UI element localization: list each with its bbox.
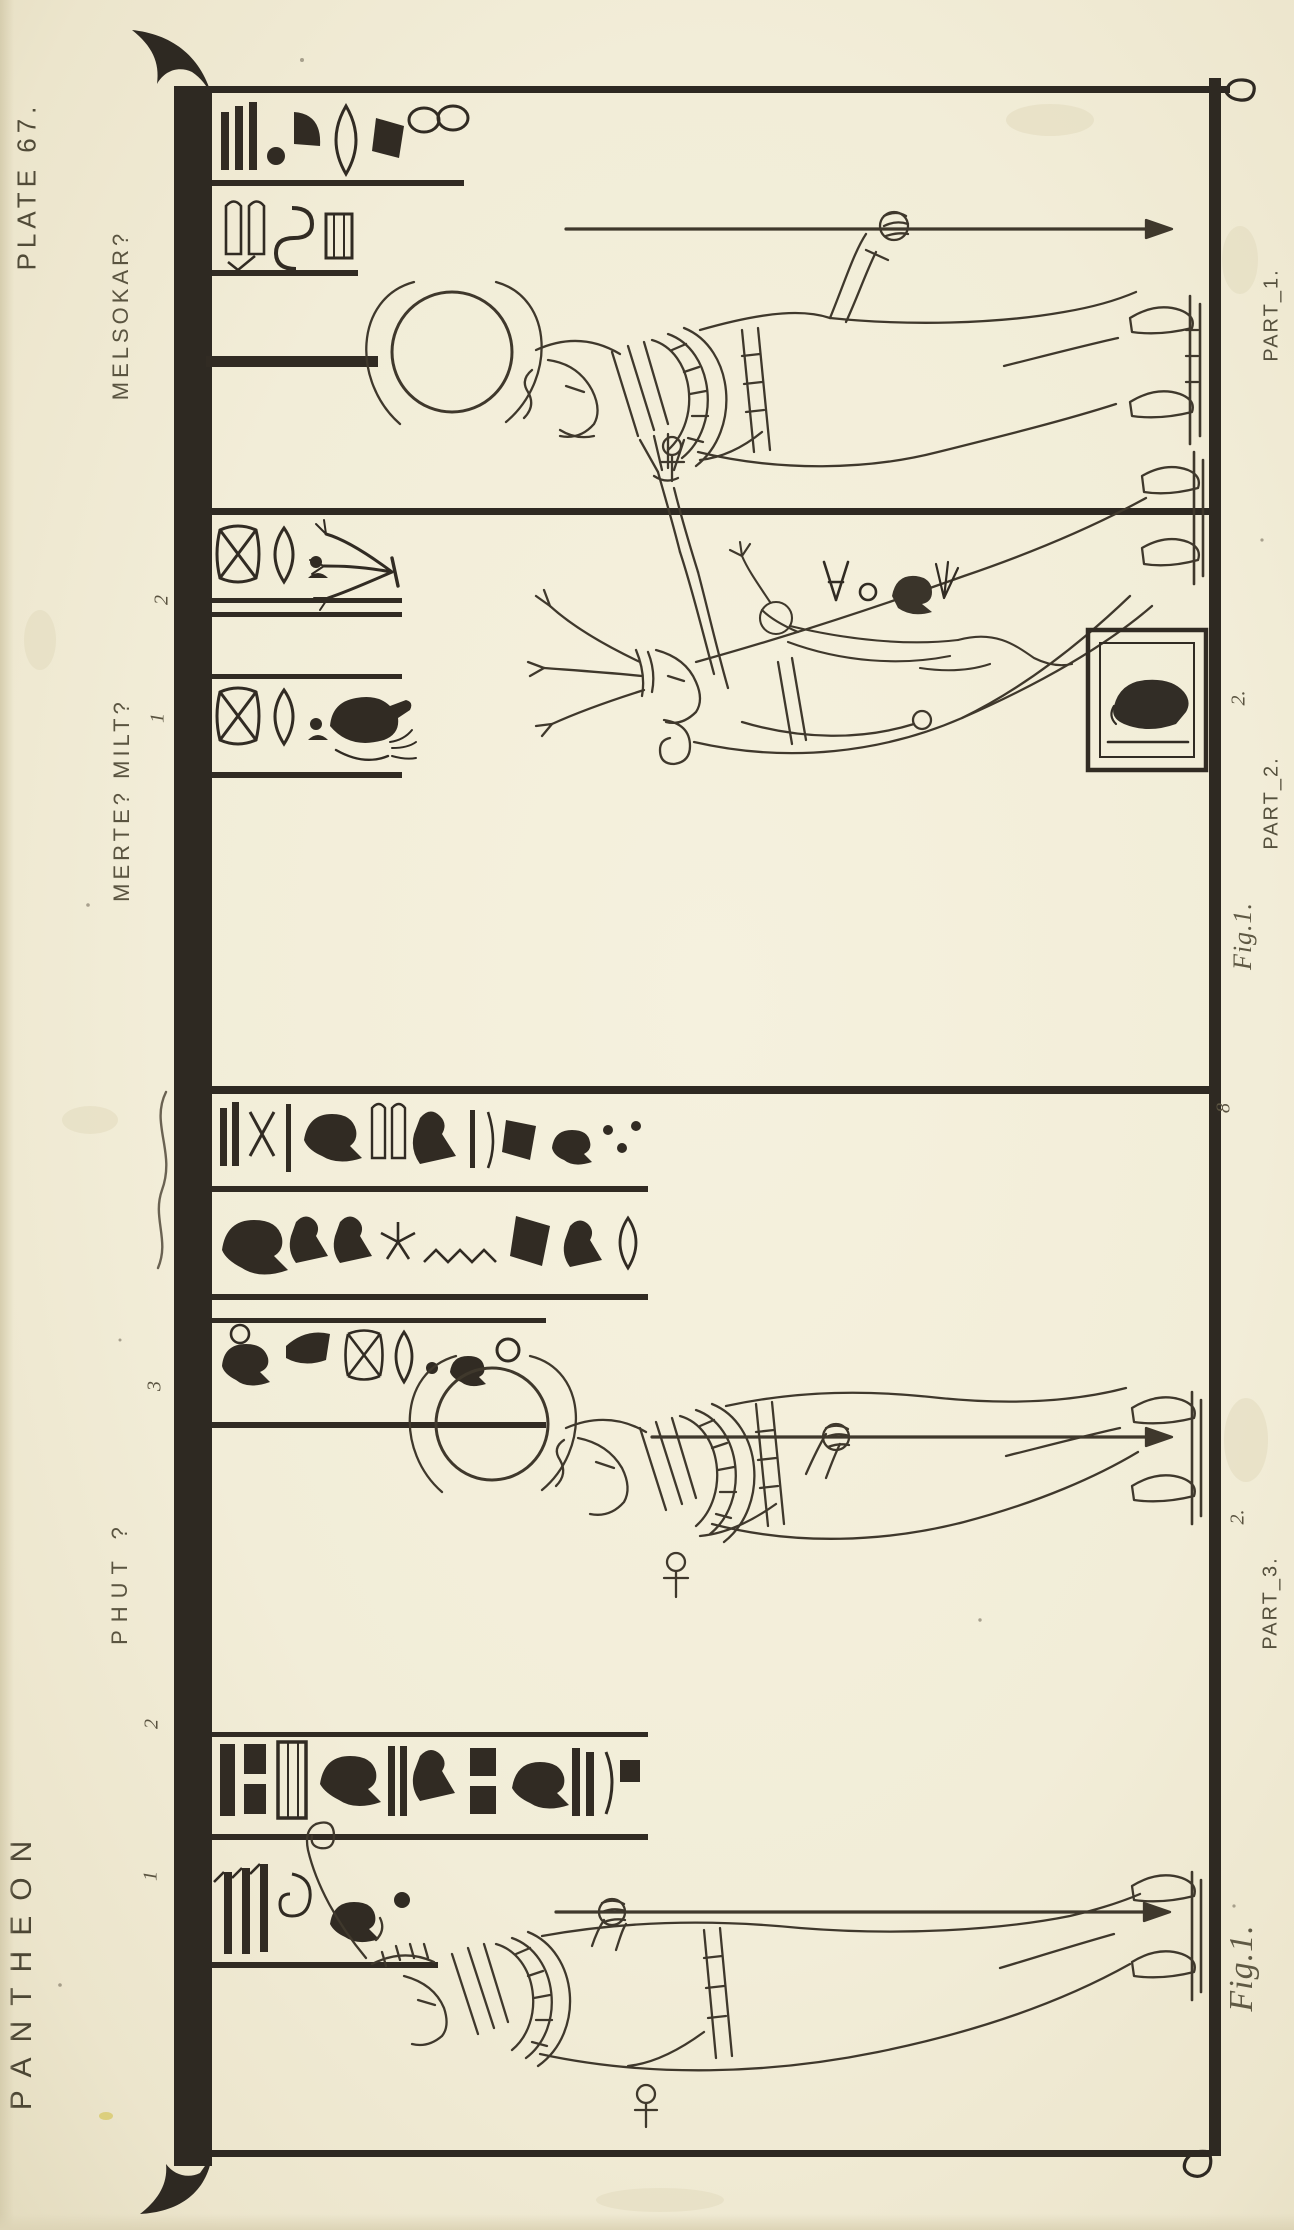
scene-number-panel2: 2. <box>1228 691 1251 706</box>
ankh-icon <box>635 2085 657 2127</box>
yellow-fleck <box>99 2112 113 2120</box>
row-number-panel2-upper: 2 <box>151 595 174 605</box>
page-edge-shadow <box>0 0 14 2230</box>
flourish-mark <box>158 1092 166 1268</box>
plate-number-label: PLATE 67. <box>12 102 43 271</box>
sacred-animal-icon <box>1113 680 1188 729</box>
figure-4-goddess <box>307 1823 1201 2128</box>
marker-number-panel3: 8 <box>1213 1103 1236 1113</box>
hieroglyph-block-panel3-row1 <box>212 1102 648 1192</box>
shrine-box <box>1088 630 1206 770</box>
hieroglyph-row-panel4-lower <box>212 1864 438 1968</box>
deity-name-panel1: MELSOKAR? <box>108 230 134 401</box>
ankh-icon <box>660 437 684 481</box>
hieroglyph-row-panel1-lower <box>206 202 378 368</box>
staff-tip <box>1146 1428 1172 1446</box>
hieroglyph-caption-child <box>824 562 958 614</box>
page-bottom-shadow <box>0 2214 1294 2230</box>
figure-1-goddess <box>366 212 1200 481</box>
hieroglyph-block-panel3-row3 <box>212 1318 546 1428</box>
figure-caption-part2: Fig.1. <box>1228 902 1258 970</box>
deity-name-panel3: PHUT ? <box>107 1519 133 1645</box>
hieroglyph-row-panel2-lower <box>212 674 416 778</box>
ankh-icon <box>664 1553 688 1597</box>
part-label-2: PART_2. <box>1261 756 1284 849</box>
hieroglyph-row-panel4-upper <box>212 1732 648 1840</box>
part-label-3: PART_3. <box>1260 1556 1283 1649</box>
scanned-plate-page: PLATE 67. PANTHEON MELSOKAR? MERTE? MILT… <box>0 0 1294 2230</box>
hieroglyph-row-panel2-upper <box>212 520 402 617</box>
deity-name-panel2: MERTE? MILT? <box>109 698 135 902</box>
part-label-1: PART_1. <box>1261 268 1284 361</box>
staff-tip <box>1144 1903 1170 1921</box>
papyrus-crown-icon <box>550 606 640 662</box>
plate-illustration <box>0 0 1294 2230</box>
scene-number-panel3: 2. <box>1227 1510 1250 1525</box>
staff-tip <box>1146 220 1172 238</box>
row-number-panel4-lower: 1 <box>140 1871 163 1881</box>
sun-disk-icon <box>392 292 512 412</box>
row-number-panel2-lower: 1 <box>147 713 170 723</box>
hieroglyph-block-panel3-row2 <box>212 1216 648 1300</box>
hieroglyph-row-panel1-upper <box>212 102 468 186</box>
figure-caption-part3: Fig.1. <box>1223 1924 1261 2011</box>
row-number-panel4-upper: 2 <box>141 1719 164 1729</box>
figure-3-goddess <box>410 1356 1201 1597</box>
row-number-panel3: 3 <box>144 1381 167 1391</box>
